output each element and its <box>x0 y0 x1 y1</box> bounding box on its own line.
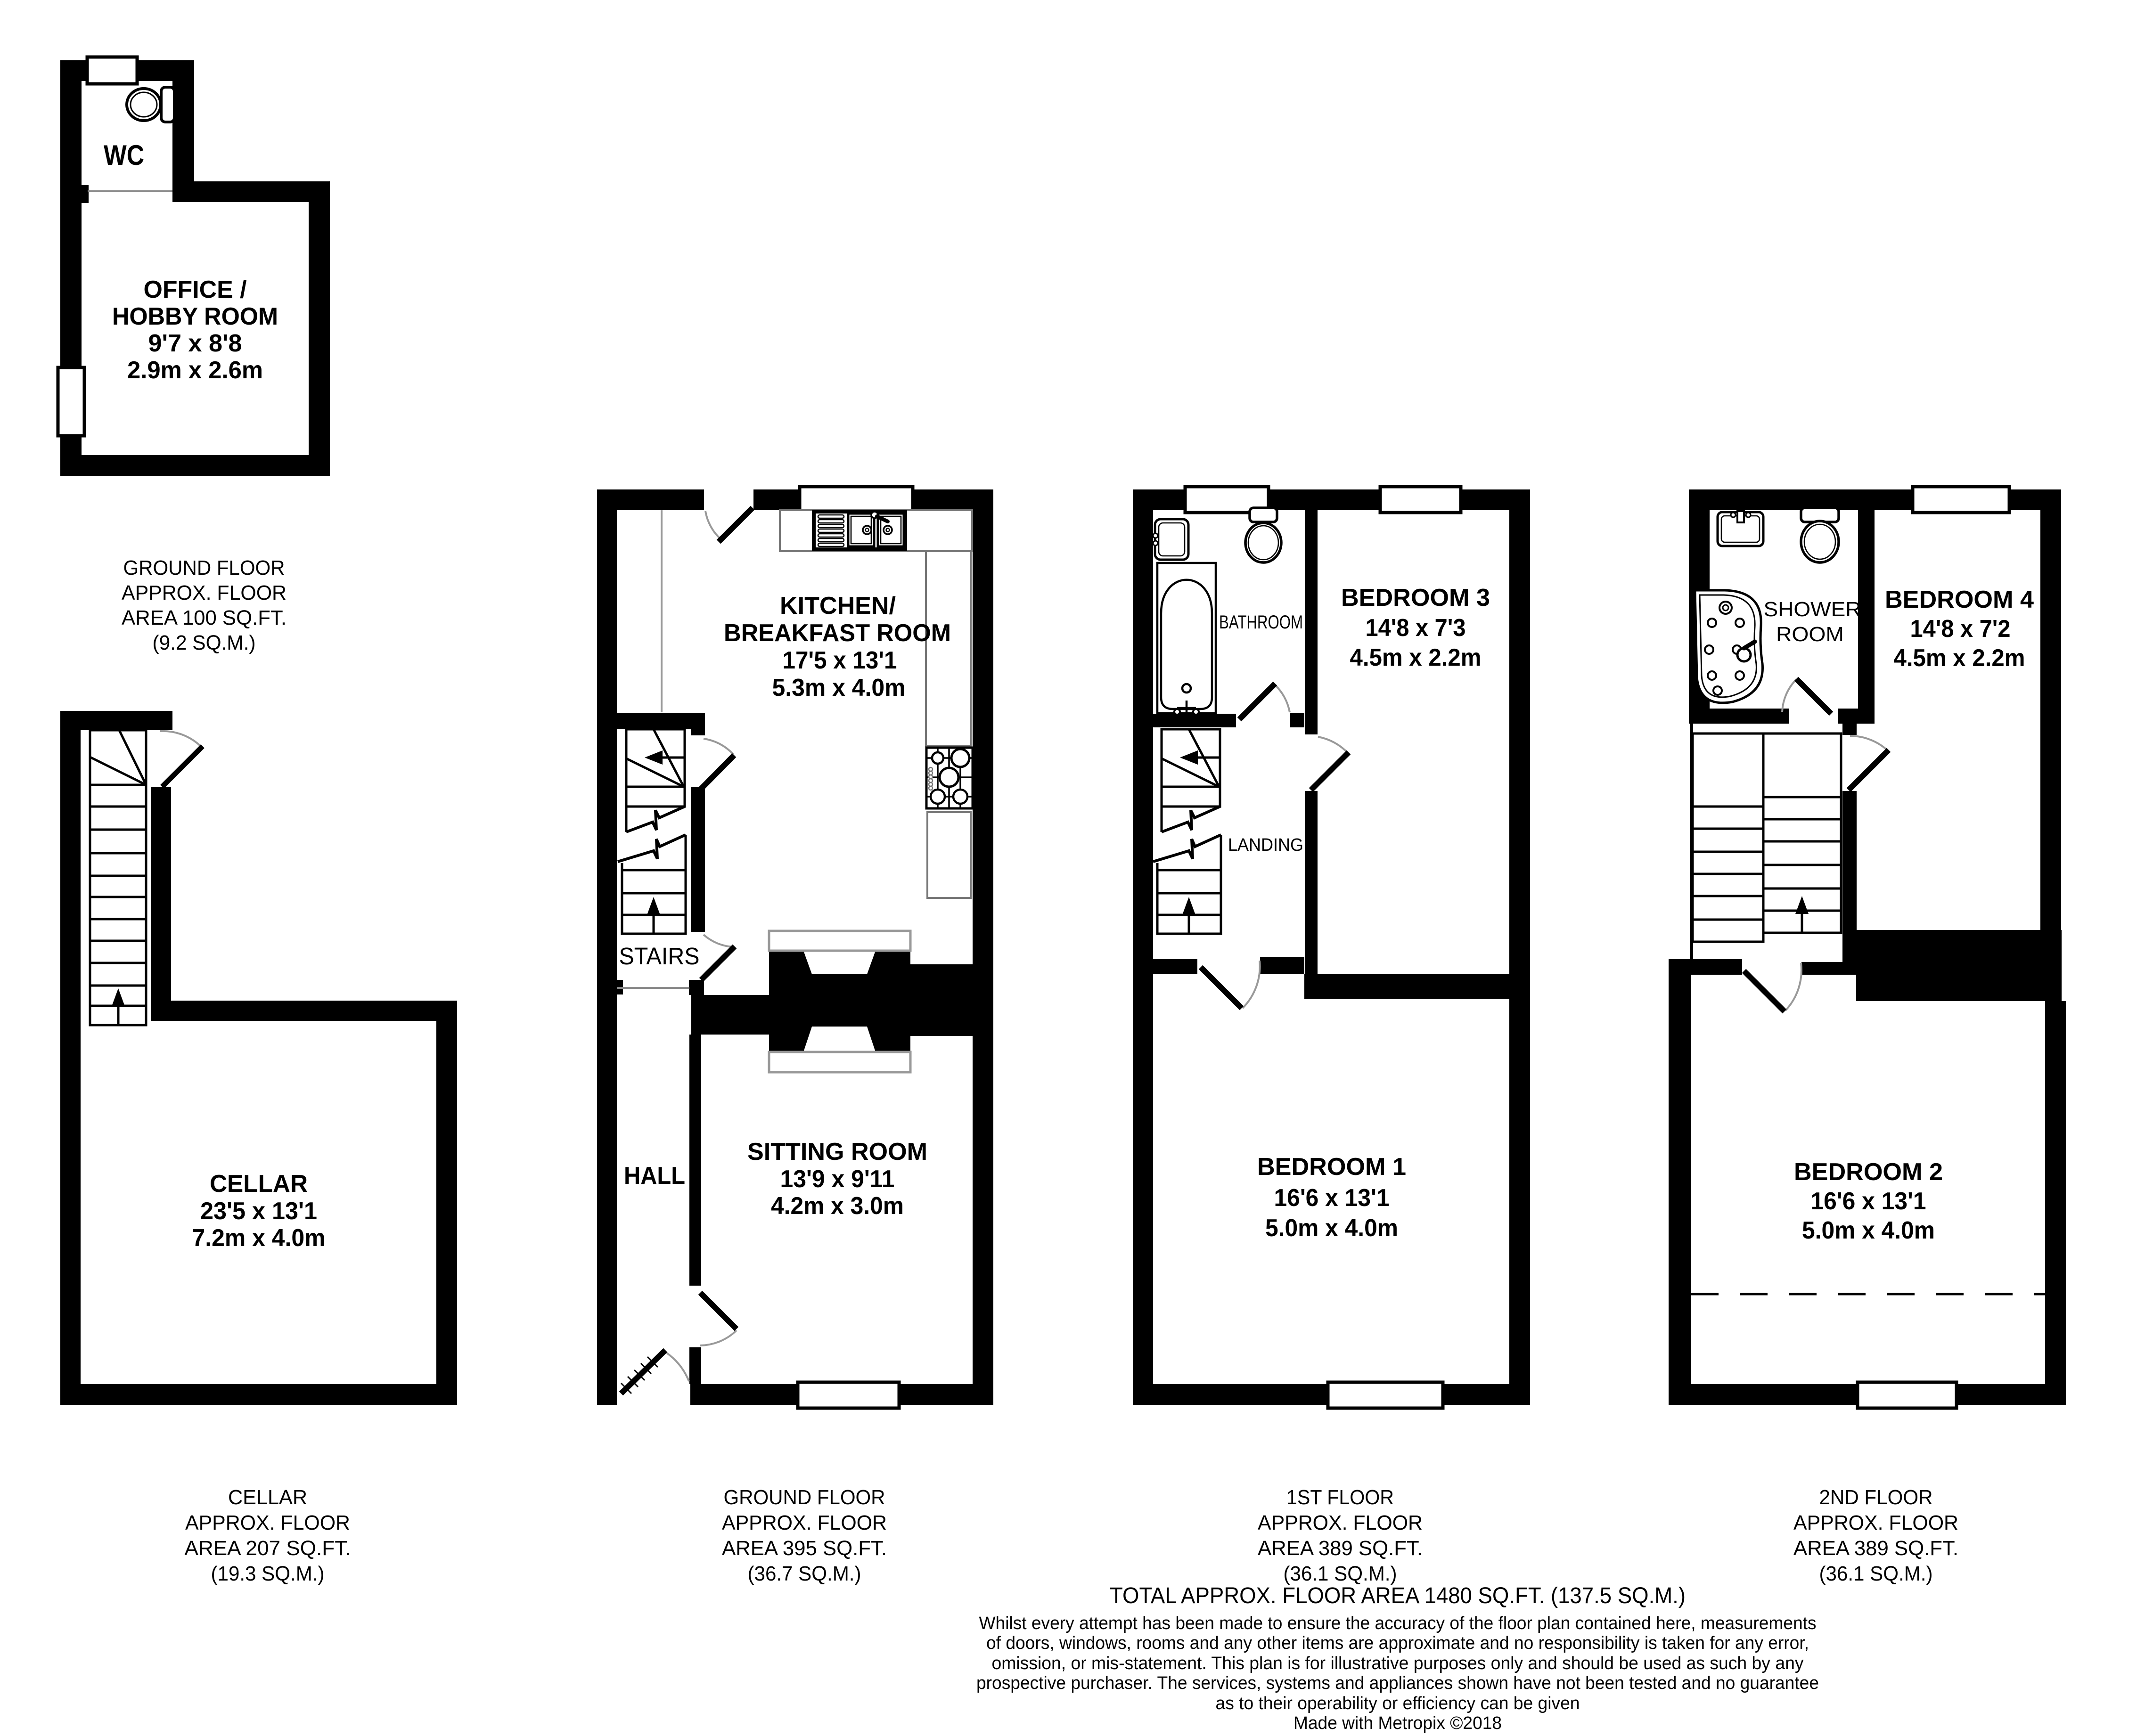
svg-text:TOTAL APPROX. FLOOR AREA 1480: TOTAL APPROX. FLOOR AREA 1480 SQ.FT. (13… <box>1110 1583 1686 1608</box>
svg-text:BEDROOM 4: BEDROOM 4 <box>1885 586 2034 613</box>
svg-text:CELLAR: CELLAR <box>228 1486 307 1509</box>
svg-text:GROUND FLOOR: GROUND FLOOR <box>724 1486 885 1509</box>
svg-text:omission, or mis-statement. Th: omission, or mis-statement. This plan is… <box>992 1654 1804 1673</box>
svg-text:BATHROOM: BATHROOM <box>1219 612 1303 633</box>
svg-text:(36.1 SQ.M.): (36.1 SQ.M.) <box>1819 1562 1933 1585</box>
svg-text:1ST FLOOR: 1ST FLOOR <box>1286 1486 1394 1509</box>
svg-text:APPROX. FLOOR: APPROX. FLOOR <box>722 1511 887 1534</box>
svg-text:prospective purchaser. The ser: prospective purchaser. The services, sys… <box>976 1673 1819 1693</box>
svg-text:9'7 x 8'8: 9'7 x 8'8 <box>148 330 242 357</box>
svg-text:HALL: HALL <box>624 1162 685 1190</box>
svg-text:AREA 100 SQ.FT.: AREA 100 SQ.FT. <box>122 606 287 629</box>
svg-text:(36.7 SQ.M.): (36.7 SQ.M.) <box>748 1562 861 1585</box>
svg-text:BEDROOM 3: BEDROOM 3 <box>1341 584 1490 611</box>
svg-text:AREA 207 SQ.FT.: AREA 207 SQ.FT. <box>185 1537 351 1560</box>
svg-text:KITCHEN/: KITCHEN/ <box>780 592 896 619</box>
svg-text:5.0m x 4.0m: 5.0m x 4.0m <box>1265 1214 1398 1242</box>
svg-text:CELLAR: CELLAR <box>210 1170 308 1198</box>
svg-text:LANDING: LANDING <box>1228 835 1303 855</box>
svg-text:5.0m x 4.0m: 5.0m x 4.0m <box>1802 1217 1935 1244</box>
svg-text:WC: WC <box>104 139 144 171</box>
svg-text:BREAKFAST ROOM: BREAKFAST ROOM <box>724 619 951 647</box>
svg-text:2.9m x 2.6m: 2.9m x 2.6m <box>127 357 263 384</box>
svg-text:HOBBY ROOM: HOBBY ROOM <box>112 303 278 330</box>
svg-text:GROUND FLOOR: GROUND FLOOR <box>123 556 285 579</box>
svg-text:SHOWER: SHOWER <box>1764 598 1861 621</box>
svg-text:BEDROOM 1: BEDROOM 1 <box>1257 1153 1406 1181</box>
svg-text:13'9 x 9'11: 13'9 x 9'11 <box>780 1165 895 1193</box>
svg-text:SITTING ROOM: SITTING ROOM <box>747 1138 927 1165</box>
svg-text:(19.3 SQ.M.): (19.3 SQ.M.) <box>211 1562 325 1585</box>
svg-text:4.2m x 3.0m: 4.2m x 3.0m <box>771 1192 904 1220</box>
svg-text:Made with Metropix ©2018: Made with Metropix ©2018 <box>1294 1713 1502 1733</box>
svg-text:of doors, windows, rooms and a: of doors, windows, rooms and any other i… <box>986 1633 1809 1653</box>
svg-text:16'6 x 13'1: 16'6 x 13'1 <box>1274 1184 1390 1212</box>
svg-text:14'8 x 7'3: 14'8 x 7'3 <box>1366 614 1466 642</box>
svg-text:BEDROOM 2: BEDROOM 2 <box>1794 1158 1943 1186</box>
svg-text:AREA 389 SQ.FT.: AREA 389 SQ.FT. <box>1258 1537 1423 1560</box>
svg-text:14'8 x 7'2: 14'8 x 7'2 <box>1910 615 2011 643</box>
svg-text:7.2m x 4.0m: 7.2m x 4.0m <box>192 1224 326 1252</box>
svg-text:APPROX. FLOOR: APPROX. FLOOR <box>122 581 287 604</box>
svg-text:17'5 x 13'1: 17'5 x 13'1 <box>783 647 897 674</box>
svg-text:5.3m x 4.0m: 5.3m x 4.0m <box>772 674 906 701</box>
svg-text:(9.2 SQ.M.): (9.2 SQ.M.) <box>153 631 256 654</box>
svg-text:APPROX. FLOOR: APPROX. FLOOR <box>1258 1511 1423 1534</box>
svg-text:23'5 x 13'1: 23'5 x 13'1 <box>200 1198 317 1225</box>
svg-text:APPROX. FLOOR: APPROX. FLOOR <box>185 1511 350 1534</box>
svg-text:AREA 389 SQ.FT.: AREA 389 SQ.FT. <box>1793 1537 1958 1560</box>
svg-text:4.5m x 2.2m: 4.5m x 2.2m <box>1894 644 2025 672</box>
svg-text:Whilst every attempt has been: Whilst every attempt has been made to en… <box>979 1614 1817 1633</box>
svg-text:APPROX. FLOOR: APPROX. FLOOR <box>1793 1511 1958 1534</box>
svg-text:ROOM: ROOM <box>1776 623 1844 646</box>
svg-text:2ND FLOOR: 2ND FLOOR <box>1819 1486 1933 1509</box>
svg-text:(36.1 SQ.M.): (36.1 SQ.M.) <box>1284 1562 1397 1585</box>
svg-text:as to their operability or eff: as to their operability or efficiency ca… <box>1216 1694 1580 1713</box>
svg-text:STAIRS: STAIRS <box>619 943 700 970</box>
svg-text:4.5m x 2.2m: 4.5m x 2.2m <box>1350 644 1482 671</box>
svg-text:16'6 x 13'1: 16'6 x 13'1 <box>1811 1188 1926 1215</box>
svg-text:AREA 395 SQ.FT.: AREA 395 SQ.FT. <box>722 1537 887 1560</box>
svg-text:OFFICE /: OFFICE / <box>144 276 247 303</box>
